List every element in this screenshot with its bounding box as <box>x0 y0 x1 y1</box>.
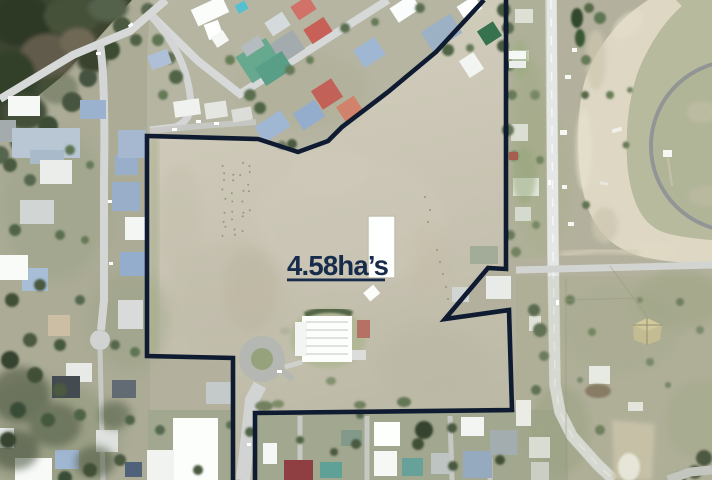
svg-text:4.58ha’s: 4.58ha’s <box>287 250 389 281</box>
